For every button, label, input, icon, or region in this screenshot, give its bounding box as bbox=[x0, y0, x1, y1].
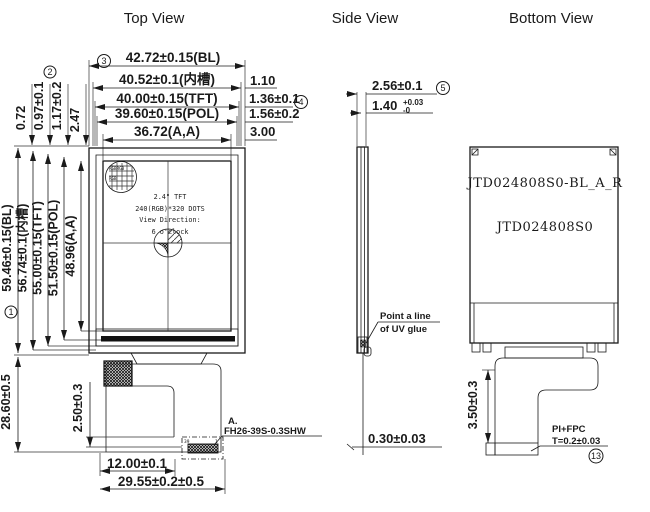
dim-aa-height: 48.96(A,A) bbox=[64, 215, 78, 276]
panel-resolution-text: 240(RGB)*320 DOTS bbox=[135, 205, 205, 213]
dim-connector-offset: 2.50±0.3 bbox=[71, 384, 85, 433]
fpc-inner-contour bbox=[106, 386, 174, 437]
dim-fpc-thickness: 0.30±0.03 bbox=[368, 431, 426, 446]
driver-ic-bar bbox=[101, 336, 235, 342]
dim-slot-width: 40.52±0.1(内槽) bbox=[119, 71, 215, 87]
bottom-view-title: Bottom View bbox=[509, 10, 593, 27]
dim-bl-width: 42.72±0.15(BL) bbox=[126, 50, 220, 65]
dim-0-97: 0.97±0.1 bbox=[32, 82, 46, 131]
fpc-end-tab bbox=[486, 443, 495, 455]
marker-2: 2 bbox=[47, 67, 52, 77]
height-dims-left: 59.46±0.15(BL) 1 56.74±0.1(内槽) 55.00±0.1… bbox=[0, 148, 103, 353]
fpc-length-dim: 3.50±0.3 bbox=[466, 370, 495, 443]
panel-size-text: 2.4" TFT bbox=[154, 193, 187, 201]
fpc-bond-hatch bbox=[131, 353, 207, 364]
connector-pin-39: 39 bbox=[184, 439, 190, 445]
fpc-note: PI+FPC T=0.2±0.03 13 bbox=[531, 424, 608, 463]
dim-pol-height: 51.50±0.15(POL) bbox=[47, 200, 61, 297]
dim-tft-width: 40.00±0.15(TFT) bbox=[116, 91, 217, 106]
edge-dims-top-left: 0.72 0.97±0.1 1.17±0.2 2.47 2 bbox=[14, 66, 89, 146]
edge-dims-right: 1.10 1.36±0.1 4 1.56±0.2 3.00 bbox=[245, 73, 308, 140]
glass-stack bbox=[357, 147, 368, 353]
connector-body bbox=[188, 444, 218, 453]
dim-total-thickness: 2.56±0.1 bbox=[372, 78, 423, 93]
fpc-component bbox=[104, 361, 132, 386]
dim-glass-tol-minus: -0 bbox=[403, 106, 411, 115]
corner-mark-right bbox=[610, 149, 616, 155]
part-number-module: JTD024808S0 bbox=[495, 220, 594, 235]
fpc-note-line1: PI+FPC bbox=[552, 424, 586, 435]
glue-note-line1: Point a line bbox=[380, 311, 431, 322]
pixel-label-row2: RGB bbox=[109, 176, 117, 181]
corner-mark-left bbox=[472, 149, 478, 155]
marker-5: 5 bbox=[440, 83, 445, 93]
uv-glue-area: Point a line of UV glue bbox=[358, 311, 440, 356]
module-outline: RGBRGB RGB 2.4" TFT 240(RGB)*320 DOTS Vi… bbox=[89, 148, 245, 353]
glue-note-line2: of UV glue bbox=[380, 324, 427, 335]
top-view: 3 42.72±0.15(BL) 40.52±0.1(内槽) 40.00±0.1… bbox=[0, 50, 322, 494]
fpc-contact-fingers bbox=[495, 443, 538, 455]
bottom-view: JTD024808S0-BL_A_R JTD024808S0 3.50±0.3 … bbox=[466, 147, 624, 463]
marker-1: 1 bbox=[8, 307, 13, 317]
dim-aa-width: 36.72(A,A) bbox=[134, 124, 200, 139]
top-view-title: Top View bbox=[124, 10, 185, 27]
dim-edge-1-36: 1.36±0.1 bbox=[249, 91, 300, 106]
dim-tft-height: 55.00±0.15(TFT) bbox=[31, 201, 45, 295]
side-view-title: Side View bbox=[332, 10, 399, 27]
dim-module-height: 28.60±0.5 bbox=[0, 374, 13, 430]
fpc-bond-hatch-bottom bbox=[505, 347, 583, 358]
dim-2-47: 2.47 bbox=[68, 108, 82, 132]
drawing-sheet: Top View Side View Bottom View 3 42.72±0… bbox=[0, 0, 650, 507]
connector-callout: A. FH26-39S-0.3SHW bbox=[214, 416, 322, 445]
callout-part-number: FH26-39S-0.3SHW bbox=[224, 426, 306, 437]
dim-0-72: 0.72 bbox=[14, 106, 28, 130]
dim-edge-1-56: 1.56±0.2 bbox=[249, 106, 300, 121]
dim-glass-thickness: 1.40 bbox=[372, 98, 397, 113]
pixel-detail-circle: RGBRGB RGB bbox=[106, 162, 137, 193]
dim-bl-height: 59.46±0.15(BL) bbox=[0, 204, 14, 291]
panel-view-direction-label: View Direction: bbox=[139, 216, 200, 224]
dim-connector-width: 12.00±0.1 bbox=[107, 456, 167, 471]
fpc-tail: 39 1 bbox=[104, 353, 223, 459]
marker-13: 13 bbox=[591, 451, 601, 461]
marker-3: 3 bbox=[101, 56, 106, 66]
thickness-dims: 2.56±0.1 5 1.40 +0.03 -0 bbox=[346, 78, 450, 146]
outline-drawing-svg: Top View Side View Bottom View 3 42.72±0… bbox=[0, 0, 650, 507]
dim-1-17: 1.17±0.2 bbox=[50, 82, 64, 131]
dim-edge-3-00: 3.00 bbox=[250, 124, 275, 139]
side-view: 2.56±0.1 5 1.40 +0.03 -0 Point a line of… bbox=[346, 78, 450, 455]
dim-edge-1-10: 1.10 bbox=[250, 73, 275, 88]
dim-pol-width: 39.60±0.15(POL) bbox=[115, 106, 219, 121]
fpc-note-line2: T=0.2±0.03 bbox=[552, 436, 600, 447]
fpc-thickness-dim: 0.30±0.03 bbox=[347, 431, 442, 450]
dim-fpc-length: 3.50±0.3 bbox=[466, 381, 480, 430]
dim-fpc-width: 29.55±0.2±0.5 bbox=[118, 474, 205, 489]
center-datum-mark bbox=[154, 229, 182, 257]
pixel-label-row1: RGBRGB bbox=[109, 166, 125, 171]
part-number-backlight: JTD024808S0-BL_A_R bbox=[466, 176, 624, 191]
dim-slot-height: 56.74±0.1(内槽) bbox=[15, 204, 30, 293]
